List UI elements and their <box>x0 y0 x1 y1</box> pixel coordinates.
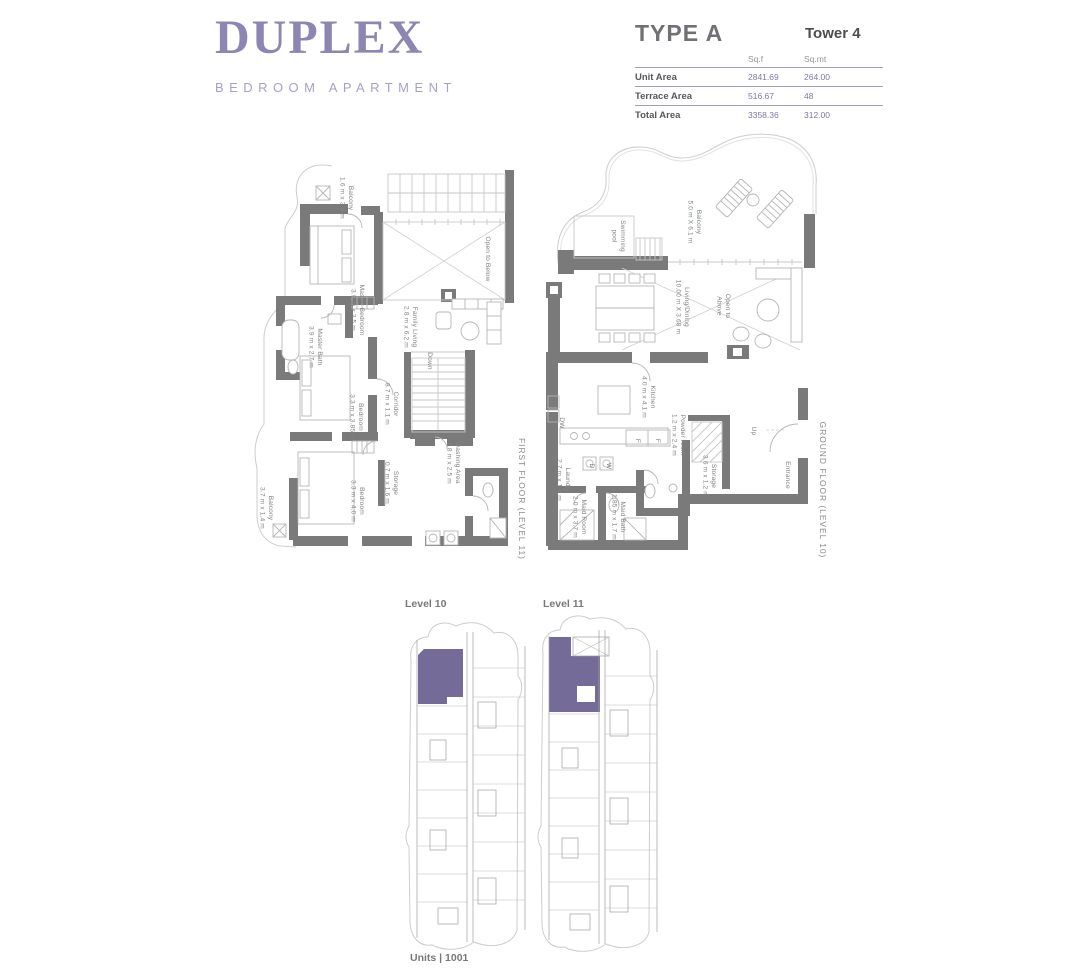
powder-storage-entrance <box>644 422 798 498</box>
bath-sink <box>328 314 341 324</box>
stairs-down <box>412 358 465 432</box>
room-label-corridor: Corridor <box>392 391 399 417</box>
round-table <box>461 322 479 340</box>
room-label-laundry: Laundry <box>564 468 571 493</box>
floorplan-sheet: { "header": { "title": "DUPLEX", "subtit… <box>0 0 1074 974</box>
room-label-balcony: Balcony <box>695 210 702 235</box>
room-dim-bedroom-2: 3.3 m x 4.0 m <box>350 480 357 522</box>
label-entrance: Entrance <box>784 461 791 489</box>
room-label-bedroom-1: Bedroom <box>357 403 364 431</box>
room-label-balcony-bottom: Balcony <box>267 496 274 521</box>
label-up: Up <box>750 427 757 436</box>
toilet <box>288 360 298 374</box>
sofa <box>791 268 802 342</box>
room-label-balcony-top: Balcony <box>347 186 354 211</box>
entrance-door-arc <box>770 424 798 452</box>
room-dim-balcony-top: 1.6 m x 3.4 m <box>339 177 346 219</box>
units-label: Units | 1001 <box>410 952 469 964</box>
armchair <box>436 312 451 329</box>
room-dim-powder-room: 1.2 m x 2.4 m <box>671 414 678 456</box>
label-fridge-2: F <box>654 439 661 443</box>
room-dim-balcony: 5.0 m X 6.1 m <box>687 201 694 244</box>
room-dim-maid-bath: 1.85 m x 1.7 m <box>611 494 618 540</box>
level11-plate: Level 11 <box>538 598 657 951</box>
room-dim-balcony-bottom: 3.7 m x 1.4 m <box>259 487 266 529</box>
room-dim-living-dining: 10.00 m X 3.68 m <box>675 280 682 335</box>
side-table <box>747 194 759 206</box>
door-arc <box>473 496 488 511</box>
room-dim-family-living: 2.8 m x 6.2 m <box>403 306 410 348</box>
toilet <box>645 484 655 498</box>
room-dim-corridor: 8.7 m x 1.1 m <box>384 383 391 425</box>
ground-floor-labels: Swimming pool Balcony 5.0 m X 6.1 m Livi… <box>556 201 829 559</box>
highlighted-unit-level10 <box>418 649 463 704</box>
master-bed <box>310 226 354 284</box>
ground-floor-plan: Swimming pool Balcony 5.0 m X 6.1 m Livi… <box>546 134 828 558</box>
room-label-maid-room: Maid Room <box>580 499 587 534</box>
toilet <box>483 483 493 497</box>
room-dim-bedroom-1: 3.3 m x 3.85 m <box>349 394 356 440</box>
room-dim-storage: 0.7 m x 1.6 m <box>384 462 391 504</box>
room-label-powder-room: Powder room <box>679 415 686 456</box>
room-label-master-bath: Master Bath <box>316 328 323 365</box>
room-label-swimming-pool-2: pool <box>611 229 618 242</box>
armchair <box>755 334 771 348</box>
washer <box>426 531 440 545</box>
level11-label: Level 11 <box>543 598 584 610</box>
room-dim-master-bath: 3.9 m x 2.7 m <box>308 326 315 368</box>
ground-floor-title: GROUND FLOOR (LEVEL 10) <box>818 422 828 559</box>
bedroom1-bed <box>300 356 350 420</box>
room-dim-laundry: 2.7 m x 1.6 m <box>556 459 563 501</box>
washer <box>444 531 458 545</box>
room-label-living-dining: Living/Dining <box>683 287 690 327</box>
room-dim-master-bedroom: 3.9 m x 3.5 m <box>350 289 357 331</box>
room-label-open-to-below: Open to Below <box>484 236 491 281</box>
sofa <box>487 302 501 344</box>
room-dim-maid-room: 2.0 m x 3.7 m <box>572 496 579 538</box>
room-label-open-to-above-2: Above <box>716 296 723 316</box>
bedroom2-bed <box>298 452 354 524</box>
highlighted-unit-level11 <box>549 637 600 712</box>
room-dim-kitchen: 4.0 m x 4.1 m <box>641 376 648 418</box>
level10-label: Level 10 <box>405 598 447 610</box>
label-down: Down <box>426 352 433 370</box>
powder-sink <box>669 484 677 492</box>
coffee-table <box>757 299 779 321</box>
room-label-bedroom-2: Bedroom <box>358 487 365 515</box>
room-dim-storage: 3.6 m x 1.2 m <box>702 455 709 497</box>
label-dryer: D <box>588 464 595 469</box>
level10-plate: Level 10 <box>405 598 525 949</box>
kitchen-island <box>598 386 630 414</box>
first-floor-plan: Balcony 1.6 m x 3.4 m Master Bedroom 3.9… <box>255 165 527 560</box>
room-label-storage: Storage <box>710 464 717 488</box>
room-label-storage: Storage <box>392 471 399 495</box>
room-label-maid-bath: Maid Bath <box>619 501 626 532</box>
room-label-family-living: Family Living <box>411 307 418 348</box>
room-label-swimming-pool: Swimming <box>619 220 626 252</box>
room-dim-washing-area: 1.8 m x 2.5 m <box>446 442 453 484</box>
door-arc <box>644 470 658 484</box>
living-dining-area <box>596 268 802 350</box>
label-fridge-1: F <box>634 439 641 443</box>
first-floor-title: FIRST FLOOR (LEVEL 11) <box>517 438 527 560</box>
label-dw: DW <box>558 417 565 429</box>
roof-louver-area <box>388 174 505 212</box>
floorplan-canvas: Balcony 1.6 m x 3.4 m Master Bedroom 3.9… <box>0 0 1074 974</box>
room-label-kitchen: Kitchen <box>649 385 656 408</box>
armchair <box>733 327 749 341</box>
label-washer: W <box>605 463 612 470</box>
room-label-open-to-above: Open to <box>724 294 731 319</box>
room-label-washing-area: washing Area <box>454 441 461 484</box>
room-label-master-bedroom: Master Bedroom <box>358 285 365 336</box>
bathtub <box>282 320 299 360</box>
